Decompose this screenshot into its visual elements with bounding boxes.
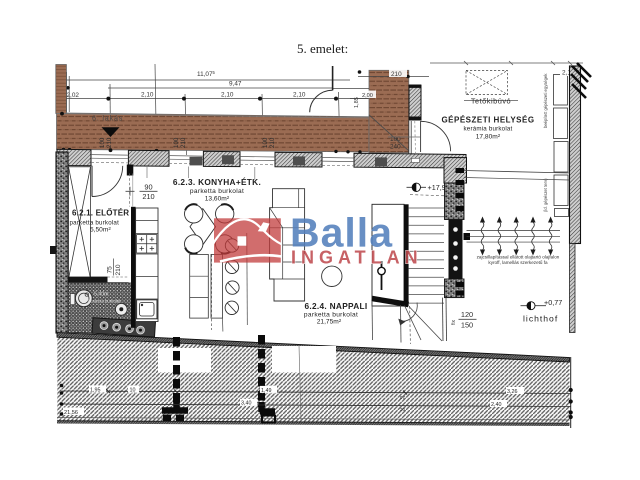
svg-text:210: 210: [269, 137, 276, 148]
svg-text:parketta burkolat: parketta burkolat: [70, 220, 120, 227]
svg-text:6.2.4. NAPPALI: 6.2.4. NAPPALI: [304, 301, 367, 311]
svg-text:parketta burkolat: parketta burkolat: [304, 312, 358, 319]
svg-text:10: 10: [130, 388, 136, 394]
svg-text:210: 210: [180, 137, 187, 148]
svg-text:6.2.1. ELŐTÉR: 6.2.1. ELŐTÉR: [72, 209, 129, 218]
svg-text:100: 100: [99, 137, 106, 148]
svg-text:fix: fix: [451, 320, 457, 326]
svg-text:2,10: 2,10: [293, 92, 306, 99]
svg-text:beépített gépészeti egységek: beépített gépészeti egységek: [543, 73, 548, 128]
svg-text:6.2.3. KONYHA+ÉTK.: 6.2.3. KONYHA+ÉTK.: [173, 177, 261, 187]
svg-text:kyroff, lamellás szerkezetű fa: kyroff, lamellás szerkezetű fa: [488, 260, 548, 265]
svg-text:lichthof: lichthof: [523, 314, 558, 324]
svg-text:INGATLAN: INGATLAN: [291, 248, 423, 268]
svg-text:2,10: 2,10: [221, 92, 234, 99]
svg-text:100: 100: [173, 137, 180, 148]
svg-text:120: 120: [461, 310, 473, 319]
svg-text:+0,77: +0,77: [544, 298, 562, 307]
svg-text:21,56: 21,56: [64, 410, 78, 416]
svg-text:2,00: 2,00: [362, 93, 373, 99]
svg-text:2,10: 2,10: [141, 92, 154, 99]
svg-text:97: 97: [400, 395, 405, 400]
svg-text:3,40: 3,40: [241, 401, 252, 407]
svg-text:2,40: 2,40: [491, 402, 502, 408]
svg-text:210: 210: [115, 264, 122, 275]
svg-text:30: 30: [400, 407, 405, 412]
svg-text:1,85: 1,85: [354, 97, 360, 108]
svg-text:13,60m2: 13,60m2: [205, 195, 230, 203]
svg-text:parketta burkolat: parketta burkolat: [190, 188, 244, 195]
svg-text:kerámia burkolat: kerámia burkolat: [88, 299, 121, 304]
svg-text:75: 75: [106, 266, 113, 274]
svg-text:6. lakás: 6. lakás: [92, 114, 123, 123]
svg-text:240: 240: [390, 144, 401, 151]
svg-text:210: 210: [106, 137, 113, 148]
svg-text:2,02: 2,02: [67, 92, 80, 99]
svg-text:9,47: 9,47: [229, 81, 242, 88]
svg-text:1,49: 1,49: [261, 388, 272, 394]
svg-text:5,50m2: 5,50m2: [90, 226, 111, 234]
svg-text:21,75m2: 21,75m2: [317, 318, 342, 326]
svg-text:5. emelet:: 5. emelet:: [297, 41, 348, 56]
svg-text:5,40m: 5,40m: [94, 292, 108, 298]
svg-text:210: 210: [391, 71, 402, 78]
svg-text:1,95: 1,95: [90, 387, 101, 393]
svg-text:90: 90: [144, 183, 152, 192]
svg-text:(ld. gépészet terv): (ld. gépészet terv): [543, 178, 548, 212]
svg-text:150: 150: [461, 321, 473, 330]
svg-text:zajcsillapítással ellátott ola: zajcsillapítással ellátott olajtartó ola…: [477, 255, 560, 260]
svg-text:210: 210: [142, 192, 154, 201]
svg-text:100: 100: [262, 137, 269, 148]
svg-text:17,80m2: 17,80m2: [476, 133, 501, 141]
svg-text:GÉPÉSZETI HELYSÉG: GÉPÉSZETI HELYSÉG: [441, 116, 534, 125]
svg-text:3,26: 3,26: [507, 389, 518, 395]
svg-text:kerámia burkolat: kerámia burkolat: [464, 126, 513, 133]
